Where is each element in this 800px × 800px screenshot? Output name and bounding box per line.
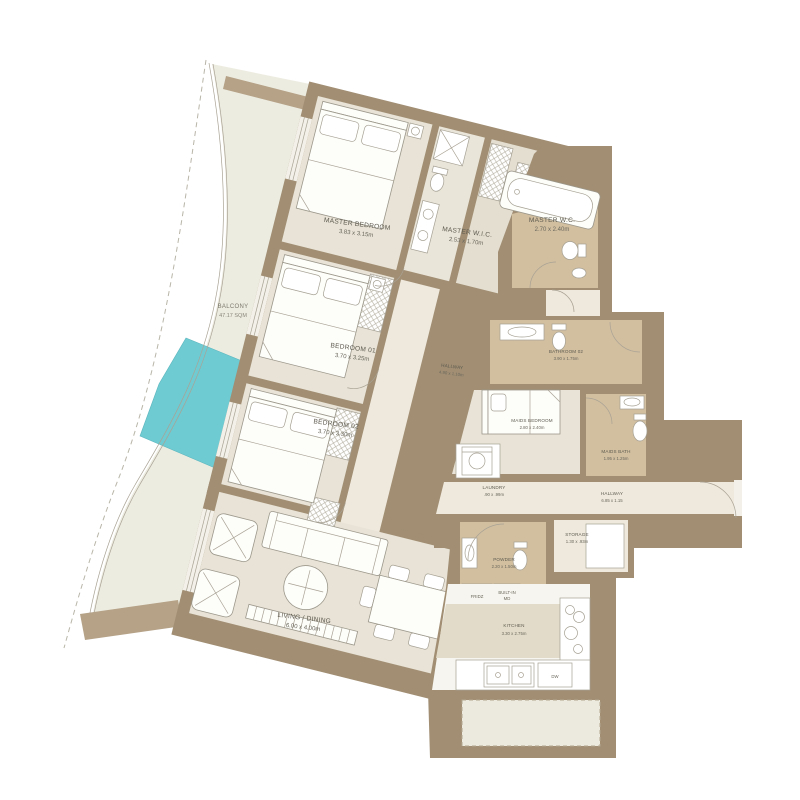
svg-text:MAIDS BATH: MAIDS BATH [601,449,630,454]
svg-text:POWDER: POWDER [493,557,515,562]
svg-text:.90 x .99m: .90 x .99m [484,492,504,497]
svg-text:LAUNDRY: LAUNDRY [483,485,506,490]
svg-text:KITCHEN: KITCHEN [503,623,524,628]
svg-text:2.80 x 2.40m: 2.80 x 2.40m [520,425,545,430]
toilet-icon [552,324,566,350]
svg-text:STORAGE: STORAGE [565,532,588,537]
toilet-icon [633,414,647,441]
floor-plan-page: BALCONY 47.17 SQM MASTER BEDROOM 3.83 x … [0,0,800,800]
svg-text:1.95 x 1.25m: 1.95 x 1.25m [604,456,629,461]
svg-text:MASTER W.C.: MASTER W.C. [529,217,575,224]
wc-lobby [546,290,600,316]
fridge-label: FRIDZ [471,594,484,599]
svg-text:6.85 x 1.15: 6.85 x 1.15 [601,498,623,503]
svg-text:MD: MD [504,596,511,601]
entrance-jut-wall [656,420,742,482]
floor-plan: BALCONY 47.17 SQM MASTER BEDROOM 3.83 x … [0,0,800,800]
washer-icon [456,444,500,478]
dishwasher-label: DW [551,674,559,679]
svg-text:2.20 x 1.50m: 2.20 x 1.50m [492,564,517,569]
svg-text:DW: DW [551,674,559,679]
svg-text:BUILT-IN: BUILT-IN [498,590,515,595]
svg-text:BATHROOM 02: BATHROOM 02 [549,349,584,354]
svg-text:FRIDZ: FRIDZ [471,594,484,599]
hallway-2-room [436,482,736,514]
svg-text:MAIDS BEDROOM: MAIDS BEDROOM [511,418,553,423]
vanity-sink-icon [500,324,544,340]
svg-text:2.70 x 2.40m: 2.70 x 2.40m [535,227,570,233]
svg-text:BALCONY: BALCONY [218,304,249,310]
toilet-icon [562,242,586,260]
kitchen-sink-icon [484,663,534,687]
vanity-sink-icon [462,538,477,568]
sink-icon [572,268,586,278]
stove-icon [560,598,590,664]
svg-text:3.90 x 1.75m: 3.90 x 1.75m [554,356,579,361]
kitchen-island [436,604,560,658]
storage-cabinet-icon [586,524,624,568]
vanity-sink-icon [620,396,644,409]
svg-text:HALLWAY: HALLWAY [601,491,623,496]
utility-shaft [462,700,600,746]
svg-text:1.30 x .93m: 1.30 x .93m [566,539,589,544]
svg-text:3.30 x 2.75m: 3.30 x 2.75m [502,631,527,636]
svg-text:47.17 SQM: 47.17 SQM [219,313,247,319]
